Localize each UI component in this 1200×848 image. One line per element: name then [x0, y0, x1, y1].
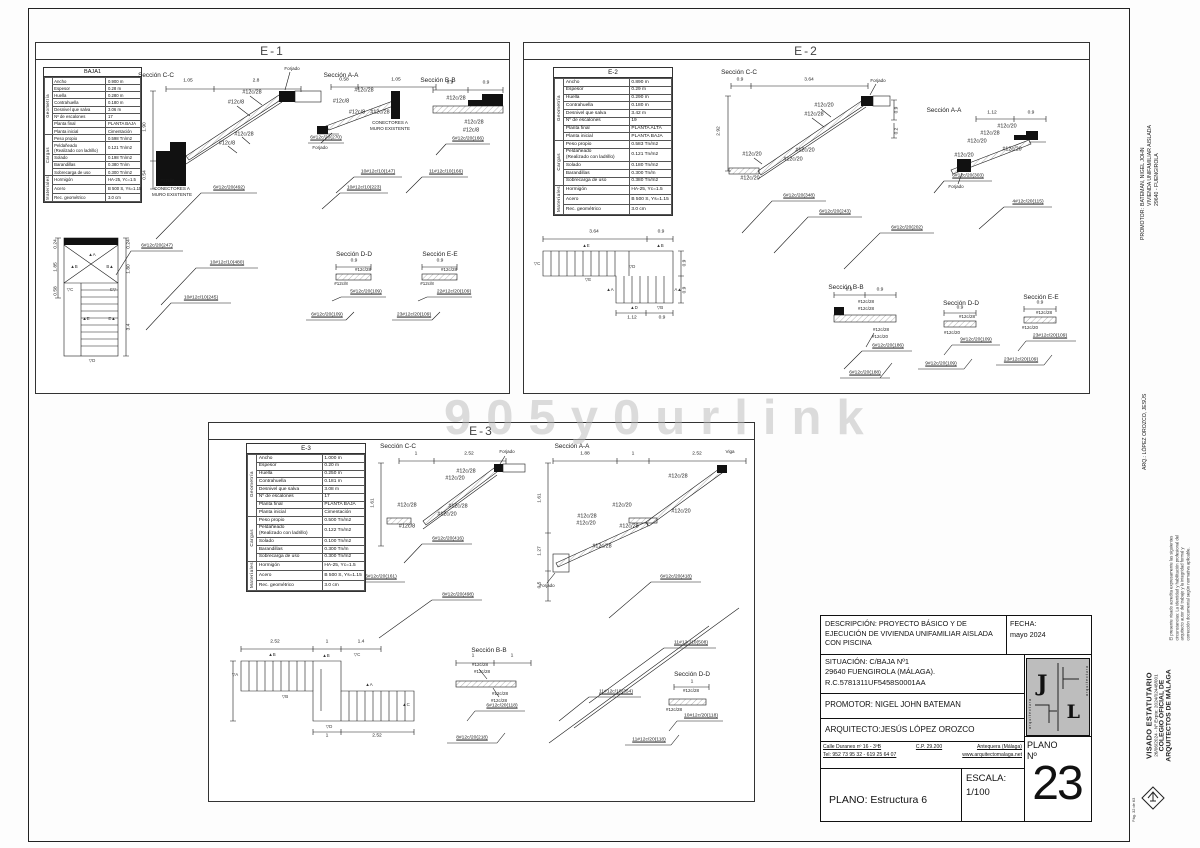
annotation-label: 22#12c/20(109)	[437, 291, 471, 296]
visado-legal-line: corrección documental según normativa ap…	[1186, 501, 1192, 641]
annotation-label: #12c/8	[228, 100, 244, 105]
spec-row-label: Peso propio	[52, 135, 106, 142]
spec-table-row: Barandillas0.300 Tn/m	[248, 546, 365, 554]
spec-row-value: PLANTA BAJA	[629, 133, 671, 141]
annotation-label: ▲A	[606, 288, 613, 292]
architect-logo: J L arquitectura arquitectura	[1026, 658, 1090, 736]
annotation-label: 1	[326, 735, 329, 740]
spec-table-row: Nº de escalones17	[248, 493, 365, 501]
annotation-label: ▲D	[630, 306, 638, 310]
spec-row-label: Ancho	[564, 79, 630, 87]
sidebar-architect: ARQ.: LÓPEZ OROZCO, JESÚS	[1142, 320, 1150, 470]
annotation-label: Forjado	[499, 450, 514, 455]
spec-table-row: Peldañeado (Realizado con ladrillo)0.122…	[248, 524, 365, 538]
annotation-label: 9#12c/20(109)	[960, 339, 992, 344]
annotation-label: ▲A	[365, 683, 372, 687]
annotation-label: #12c/20	[740, 176, 759, 181]
spec-table-row: Rec. geométrico3.0 cm	[248, 581, 365, 591]
annotation-label: 0.9	[846, 289, 853, 294]
annotation-label: #12c/28	[858, 300, 874, 305]
spec-row-label: Contrahuella	[564, 102, 630, 110]
annotation-label: Sección C-C	[380, 444, 416, 450]
annotation-label: #12c/8	[333, 99, 349, 104]
studio-address: Calle Duranes nº 16 - 3ºB C.P. 29.200 An…	[823, 744, 1022, 760]
annotation-label: #12c/28	[577, 514, 596, 519]
annotation-label: 1.61	[372, 498, 377, 508]
spec-row-label: Huella	[257, 470, 323, 478]
spec-table-title: BAJA1	[44, 68, 141, 77]
annotation-label: #12c/8	[334, 282, 348, 287]
annotation-label: #12c/28	[355, 268, 371, 273]
spec-row-label: Desnivel que salva	[52, 106, 106, 113]
panel-e1: E-1	[35, 42, 510, 394]
annotation-label: 2.52	[270, 641, 280, 646]
annotation-label: Forjado	[539, 584, 554, 589]
annotation-label: #12c/28	[668, 474, 687, 479]
annotation-label: #12c/20	[612, 503, 631, 508]
annotation-label: 2.8	[253, 80, 260, 85]
spec-row-value: 0.890 m	[629, 79, 671, 87]
spec-group-name: Geometría	[248, 455, 257, 517]
annotation-label: 1.12	[627, 317, 637, 322]
spec-table-row: CargasPeso propio0.598 Tn/m2	[45, 135, 141, 142]
annotation-label: #12c/28	[980, 131, 999, 136]
description: DESCRIPCIÓN: PROYECTO BÁSICO Y DE EJECUC…	[825, 619, 1001, 648]
spec-row-value: Cimentación	[322, 509, 364, 517]
annotation-label: #12c/20	[1022, 326, 1038, 331]
spec-row-value: 3.0 cm	[106, 193, 141, 202]
annotation-label: 8#12c/20(218)	[456, 737, 488, 742]
spec-table-row: CargasPeso propio0.500 Tn/m2	[248, 517, 365, 525]
annotation-label: #12c/28	[959, 315, 975, 320]
annotation-label: 6#12c/20(416)	[432, 538, 464, 543]
spec-row-label: Peso propio	[257, 517, 323, 525]
annotation-label: #12c/28	[666, 708, 682, 713]
spec-row-value: 0.29 m	[629, 86, 671, 94]
spec-row-value: 0.180 m	[629, 102, 671, 110]
annotation-label: 6#12c/20(202)	[891, 227, 923, 232]
annotation-label: #12c/20	[1002, 147, 1021, 152]
annotation-label: 0.9	[447, 82, 454, 87]
annotation-label: Sección D-D	[674, 672, 710, 678]
spec-table-row: Barandillas0.380 Tn/m	[45, 161, 141, 168]
plano-label: PLANO	[1027, 740, 1058, 751]
annotation-label: 0.9	[877, 289, 884, 294]
annotation-label: Viga	[726, 450, 735, 455]
annotation-label: 0.9	[659, 317, 666, 322]
spec-row-value: 0.250 m	[322, 470, 364, 478]
spec-row-value: 0.500 Tn/m2	[322, 517, 364, 525]
annotation-label: #12c/8	[420, 282, 434, 287]
spec-row-label: Planta final	[52, 120, 106, 127]
annotation-label: #12c/8	[463, 128, 479, 133]
sidebar-promoter-block: PROMOTOR: BATEMAN, NIGEL JOHN VIVIENDA U…	[1140, 120, 1168, 240]
address-city: Antequera (Málaga)	[977, 744, 1022, 752]
sidebar-promoter-city: 29640 - FUENGIROLA	[1154, 153, 1161, 206]
spec-table-row: Sobrecarga de uso0.300 Tn/m2	[248, 553, 365, 561]
annotation-label: Sección E-E	[422, 252, 457, 258]
spec-table-row: Desnivel que salva3.06 m	[45, 106, 141, 113]
annotation-label: #12c/28	[446, 96, 465, 101]
spec-row-label: Ancho	[257, 455, 323, 463]
annotation-label: 0.9	[437, 260, 444, 265]
annotation-label: 10#12c/20(118)	[684, 715, 718, 720]
address-street: Calle Duranes nº 16 - 3ºB	[823, 744, 881, 752]
spec-table-row: AceroB 500 S, Ys=1.15	[555, 195, 672, 205]
annotation-label: 0.24	[128, 239, 133, 249]
annotation-label: 6#12c/20(303)	[952, 175, 984, 180]
date-value: mayo 2024	[1010, 630, 1088, 641]
spec-row-value: 3.0 cm	[322, 581, 364, 591]
spec-row-label: Barandillas	[564, 170, 630, 178]
annotation-label: ▽D	[326, 725, 333, 729]
spec-row-label: Hormigón	[564, 185, 630, 195]
annotation-label: ▲C	[402, 703, 410, 707]
annotation-label: #12c/28	[592, 544, 611, 549]
scale-label: ESCALA:	[966, 772, 1006, 786]
annotation-label: 1.90	[144, 122, 149, 132]
annotation-label: Forjado	[312, 146, 327, 151]
spec-table-row: Espesor0.28 m	[45, 85, 141, 92]
annotation-label: #12c/8	[219, 141, 235, 146]
spec-table-row: Rec. geométrico3.0 cm	[45, 193, 141, 202]
visado-colegio-line2: ARQUITECTOS DE MÁLAGA	[1166, 641, 1173, 791]
annotation-label: #12c/28	[492, 692, 508, 697]
annotation-label: 1.4	[358, 641, 365, 646]
annotation-label: 6#12c/20(161)	[365, 576, 397, 581]
annotation-label: 6#12c/20(270)	[310, 137, 342, 142]
spec-row-value: 0.121 Tn/m2	[106, 142, 141, 154]
spec-row-value: 0.380 Tn/m	[106, 161, 141, 168]
date-cell: FECHA: mayo 2024	[1010, 619, 1088, 641]
logo-step-lines-icon	[1027, 659, 1089, 735]
annotation-label: Sección D-D	[336, 252, 372, 258]
annotation-label: 0.9	[957, 307, 964, 312]
annotation-label: 23#12c/20(109)	[1004, 359, 1038, 364]
spec-row-label: Barandillas	[52, 161, 106, 168]
annotation-label: 1.05	[183, 80, 193, 85]
spec-row-label: Sobrecarga de uso	[257, 553, 323, 561]
annotation-label: #12c/28	[448, 504, 467, 509]
spec-table-title: E-2	[554, 68, 672, 78]
annotation-label: #12c/20	[445, 476, 464, 481]
annotation-label: ▽A	[232, 673, 238, 677]
annotation-label: #12c/20	[742, 152, 761, 157]
annotation-label: #12c/28	[370, 110, 389, 115]
spec-table-row: Nº de escalones19	[555, 117, 672, 125]
annotation-label: 1.80	[128, 264, 133, 274]
spec-group-name: Geometría	[555, 79, 564, 141]
spec-row-value: B 500 S, Ys=1.15	[629, 195, 671, 205]
annotation-label: #12c/20	[814, 103, 833, 108]
spec-row-label: Nº de escalones	[257, 493, 323, 501]
spec-row-label: Nº de escalones	[52, 113, 106, 120]
tb-divider	[961, 768, 962, 821]
coa-malaga-diamond-icon	[1141, 786, 1165, 810]
annotation-label: 2.52	[692, 453, 702, 458]
spec-row-label: Peldañeado (Realizado con ladrillo)	[52, 142, 106, 154]
spec-table-row: Planta finalPLANTA ALTA	[555, 125, 672, 133]
annotation-label: 6#12c/20(109)	[311, 314, 343, 319]
spec-row-value: 0.300 Tn/m2	[106, 169, 141, 176]
annotation-label: 1	[472, 655, 475, 660]
location-line1: SITUACIÓN: C/BAJA Nº1	[825, 657, 1021, 667]
spec-row-label: Rec. geométrico	[564, 205, 630, 215]
annotation-label: 11#12c/10(508)	[674, 642, 708, 647]
spec-table-row: Nº de escalones17	[45, 113, 141, 120]
spec-row-label: Acero	[257, 571, 323, 581]
sheet-number: 23	[1026, 756, 1088, 811]
annotation-label: Sección A-A	[927, 108, 962, 114]
spec-row-label: Planta inicial	[52, 128, 106, 135]
spec-table-row: Planta inicialCimentación	[248, 509, 365, 517]
annotation-label: ▽C	[67, 288, 74, 292]
spec-row-value: 0.300 Tn/m	[322, 546, 364, 554]
annotation-label: 1.85	[55, 262, 60, 272]
spec-row-value: 0.121 Tn/m2	[629, 148, 671, 162]
spec-row-label: Peso propio	[564, 141, 630, 149]
sheet-name: PLANO: Estructura 6	[829, 794, 959, 806]
spec-table-grid: GeometríaAncho0.890 mEspesor0.29 mHuella…	[554, 78, 672, 215]
visado-colegio-line1: COLEGIO OFICIAL DE	[1159, 641, 1166, 791]
annotation-label: #12c/28	[397, 503, 416, 508]
annotation-label: 6#12c/20(186)	[872, 345, 904, 350]
spec-table-grid: GeometríaAncho0.900 mEspesor0.28 mHuella…	[44, 77, 141, 202]
annotation-label: 1	[415, 453, 418, 458]
spec-row-label: Planta final	[257, 501, 323, 509]
spec-table-row: Planta finalPLANTA BAJA	[45, 120, 141, 127]
annotation-label: 1.88	[580, 453, 590, 458]
spec-row-value: HA-25, Yc=1.5	[106, 176, 141, 185]
spec-table-e2: E-2GeometríaAncho0.890 mEspesor0.29 mHue…	[553, 67, 673, 216]
annotation-label: Forjado	[948, 185, 963, 190]
spec-table-row: Planta finalPLANTA BAJA	[248, 501, 365, 509]
spec-row-value: 0.598 Tn/m2	[106, 135, 141, 142]
panel-e2: E-2	[523, 42, 1090, 394]
annotation-label: 6#12c/20(247)	[141, 245, 173, 250]
spec-row-value: PLANTA ALTA	[629, 125, 671, 133]
spec-table-row: Peldañeado (Realizado con ladrillo)0.121…	[45, 142, 141, 154]
title-block: DESCRIPCIÓN: PROYECTO BÁSICO Y DE EJECUC…	[820, 615, 1092, 822]
spec-table-row: Solado0.100 Tn/m2	[248, 538, 365, 546]
spec-group-name: Materiales	[45, 176, 53, 202]
spec-table-row: MaterialesHormigónHA-25, Yc=1.5	[45, 176, 141, 185]
address-cp: C.P. 29.200	[916, 744, 942, 752]
tb-divider	[821, 693, 1024, 694]
promoter: PROMOTOR: NIGEL JOHN BATEMAN	[825, 700, 1021, 709]
annotation-label: 5#12c/20(109)	[350, 291, 382, 296]
annotation-label: 1.61	[539, 493, 544, 503]
address-tel: Tel: 952 73 95 32 - 619 25 64 07	[823, 752, 896, 760]
spec-row-value: HA-25, Yc=1.5	[322, 561, 364, 571]
spec-group-name: Cargas	[45, 135, 53, 176]
annotation-label: #12c/20	[967, 139, 986, 144]
annotation-label: 2.52	[464, 453, 474, 458]
tb-divider	[1006, 616, 1007, 654]
spec-row-value: 0.300 Tn/m2	[322, 553, 364, 561]
annotation-label: 0.2	[896, 128, 901, 135]
spec-group-name: Materiales	[555, 185, 564, 215]
annotation-label: 1	[691, 681, 694, 686]
annotation-label: #12c/28	[619, 524, 638, 529]
annotation-label: B▲	[106, 265, 113, 269]
spec-row-label: Hormigón	[52, 176, 106, 185]
annotation-label: 0.9	[483, 82, 490, 87]
spec-row-value: 0.100 Tn/m2	[322, 538, 364, 546]
annotation-label: 4#12c/20(115)	[1012, 201, 1043, 206]
spec-row-label: Solado	[564, 162, 630, 170]
spec-row-label: Espesor	[564, 86, 630, 94]
spec-row-label: Desnivel que salva	[564, 110, 630, 118]
annotation-label: 0.58	[339, 79, 349, 84]
spec-row-value: 3.06 m	[106, 106, 141, 113]
spec-table-row: Planta inicialCimentación	[45, 128, 141, 135]
annotation-label: ▲B	[70, 265, 77, 269]
annotation-label: #12c/20	[997, 124, 1016, 129]
annotation-label: 3.64	[589, 231, 599, 236]
annotation-label: #12c/28	[804, 112, 823, 117]
annotation-label: 8#12c/20(498)	[442, 594, 474, 599]
annotation-label: A▲	[674, 288, 681, 292]
annotation-label: 0.54	[144, 170, 149, 180]
spec-row-label: Peldañeado (Realizado con ladrillo)	[257, 524, 323, 538]
spec-table-title: E-3	[247, 444, 365, 454]
spec-row-label: Desnivel que salva	[257, 486, 323, 494]
spec-row-value: 0.20 m	[322, 462, 364, 470]
spec-row-value: 0.290 m	[629, 94, 671, 102]
location-line3: R.C.5781311UF5458S0001AA	[825, 678, 1021, 688]
spec-row-value: 0.180 Tn/m2	[629, 162, 671, 170]
spec-row-label: Planta inicial	[564, 133, 630, 141]
visado-title: VISADO ESTATUTARIO	[1145, 641, 1154, 791]
spec-row-label: Solado	[52, 154, 106, 161]
spec-group-name: Cargas	[248, 517, 257, 562]
spec-table-e1: BAJA1GeometríaAncho0.900 mEspesor0.28 mH…	[43, 67, 142, 203]
address-web: www.arquitectomalaga.net	[962, 752, 1022, 760]
spec-table-row: Espesor0.29 m	[555, 86, 672, 94]
annotation-label: 1	[326, 641, 329, 646]
annotation-label: ▲B	[268, 653, 275, 657]
spec-table-row: Contrahuella0.180 m	[45, 99, 141, 106]
spec-row-value: 0.28 m	[106, 85, 141, 92]
spec-row-value: 0.122 Tn/m2	[322, 524, 364, 538]
annotation-label: #12c/28	[873, 328, 889, 333]
spec-table-row: GeometríaAncho1.000 m	[248, 455, 365, 463]
annotation-label: CONECTORES A	[372, 121, 408, 126]
spec-row-label: Espesor	[257, 462, 323, 470]
annotation-label: 3.4	[128, 324, 133, 331]
annotation-label: Sección C-C	[721, 70, 757, 76]
spec-row-label: Sobrecarga de uso	[564, 177, 630, 185]
annotation-label: Forjado	[870, 79, 885, 84]
spec-row-value: 3.08 m	[322, 486, 364, 494]
annotation-label: 2.92	[718, 126, 723, 136]
annotation-label: 6#12c/20(118)	[486, 705, 517, 710]
annotation-label: 6#12c/20(348)	[783, 195, 815, 200]
spec-table-row: Huella0.250 m	[248, 470, 365, 478]
annotation-label: 0.9	[1028, 112, 1035, 117]
annotation-label: #12c/20	[576, 521, 595, 526]
spec-table-row: Contrahuella0.180 m	[555, 102, 672, 110]
location-line2: 29640 FUENGIROLA (MÁLAGA).	[825, 667, 1021, 677]
scale-cell: ESCALA: 1/100	[966, 772, 1006, 801]
spec-table-row: Huella0.280 m	[45, 92, 141, 99]
annotation-label: Sección C-C	[138, 73, 174, 79]
spec-table-grid: GeometríaAncho1.000 mEspesor0.20 mHuella…	[247, 454, 365, 591]
annotation-label: #12c/8	[399, 524, 415, 529]
spec-table-row: Solado0.198 Tn/m2	[45, 154, 141, 161]
annotation-label: Sección A-A	[555, 444, 590, 450]
annotation-label: 0.24	[55, 239, 60, 249]
visado-stamp: VISADO ESTATUTARIO 26/06/2024 - Nº Expte…	[1145, 641, 1180, 791]
spec-table-row: Contrahuella0.181 m	[248, 478, 365, 486]
annotation-label: 6#12c/20(418)	[660, 576, 692, 581]
spec-row-value: B 500 S, Ys=1.15	[106, 184, 141, 193]
spec-row-value: 0.583 Tn/m2	[629, 141, 671, 149]
annotation-label: #12c/28	[1036, 311, 1052, 316]
spec-row-label: Acero	[564, 195, 630, 205]
spec-row-label: Contrahuella	[52, 99, 106, 106]
spec-table-row: GeometríaAncho0.900 m	[45, 78, 141, 85]
annotation-label: #12c/28	[456, 469, 475, 474]
annotation-label: 0.9	[737, 79, 744, 84]
annotation-label: 0.9	[658, 231, 665, 236]
annotation-label: ▽B	[282, 695, 288, 699]
spec-row-label: Rec. geométrico	[52, 193, 106, 202]
spec-table-row: CargasPeso propio0.583 Tn/m2	[555, 141, 672, 149]
annotation-label: 11#12c/10(166)	[429, 171, 463, 176]
visado-legal-text: El presente visado acredita expresamente…	[1169, 501, 1192, 641]
annotation-label: #12c/20	[954, 153, 973, 158]
sidebar-promoter-project: VIVIENDA UNIFAMILIAR AISLADA	[1147, 125, 1154, 206]
spec-table-row: Solado0.180 Tn/m2	[555, 162, 672, 170]
annotation-label: 1.05	[391, 79, 401, 84]
annotation-label: 6#12c/20(188)	[849, 372, 881, 377]
annotation-label: #12c/28	[234, 132, 253, 137]
annotation-label: #12c/28	[858, 307, 874, 312]
spec-table-e3: E-3GeometríaAncho1.000 mEspesor0.20 mHue…	[246, 443, 366, 592]
annotation-label: Sección B-B	[471, 648, 506, 654]
spec-row-value: 0.280 m	[106, 92, 141, 99]
annotation-label: #12c/28	[472, 663, 488, 668]
annotation-label: MURO EXISTENTE	[152, 193, 192, 198]
spec-table-row: Barandillas0.300 Tn/m	[555, 170, 672, 178]
annotation-label: ▽C	[354, 653, 361, 657]
annotation-label: 23#12c/20(109)	[1033, 335, 1067, 340]
spec-table-row: Planta inicialPLANTA BAJA	[555, 133, 672, 141]
annotation-label: 0.9	[684, 287, 689, 294]
annotation-label: 6#12c/20(492)	[213, 187, 245, 192]
spec-table-row: AceroB 500 S, Ys=1.15	[248, 571, 365, 581]
spec-table-row: GeometríaAncho0.890 m	[555, 79, 672, 87]
annotation-label: #12c/8	[160, 179, 174, 184]
scale-value: 1/100	[966, 786, 1006, 800]
spec-row-label: Acero	[52, 184, 106, 193]
annotation-label: #12c/28	[354, 88, 373, 93]
annotation-label: ▽D	[629, 265, 636, 269]
annotation-label: #12c/8	[349, 110, 365, 115]
spec-row-value: HA-25, Yc=1.5	[629, 185, 671, 195]
spec-row-value: 0.180 m	[106, 99, 141, 106]
spec-row-value: 1.000 m	[322, 455, 364, 463]
spec-row-value: B 500 S, Ys=1.15	[322, 571, 364, 581]
annotation-label: 10#12c/10(223)	[347, 187, 381, 192]
annotation-label: ▲B	[322, 654, 329, 658]
spec-row-value: PLANTA BAJA	[322, 501, 364, 509]
annotation-label: ▽B	[657, 306, 663, 310]
spec-table-row: MaterialesHormigónHA-25, Yc=1.5	[248, 561, 365, 571]
annotation-label: ▲E	[582, 244, 589, 248]
